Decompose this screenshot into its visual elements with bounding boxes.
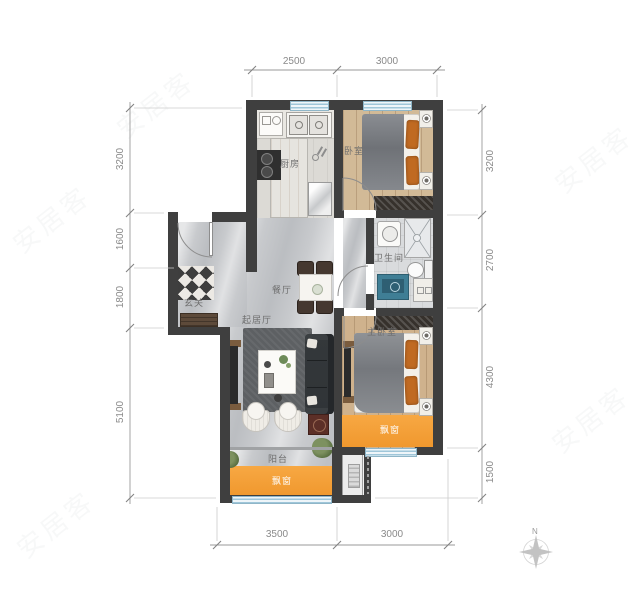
room-label-bedroom: 卧室 <box>344 147 364 156</box>
room-label-bay-window-balcony: 飘窗 <box>272 477 292 486</box>
room-label-living: 起居厅 <box>242 316 272 325</box>
pillow <box>404 340 418 369</box>
watermark: 安居客 <box>8 481 102 566</box>
room-label-master-bedroom: 主卧室 <box>367 328 397 337</box>
window <box>365 448 417 457</box>
room-label-balcony: 阳台 <box>268 455 288 464</box>
wall <box>168 212 178 335</box>
wall <box>366 294 374 310</box>
window <box>290 101 329 111</box>
entry-door-leaf <box>209 222 213 256</box>
wall <box>433 100 443 455</box>
shoe-cabinet <box>180 313 218 327</box>
room-label-kitchen: 厨房 <box>280 160 300 169</box>
kitchen-appliance <box>259 112 283 136</box>
armchair <box>242 400 270 432</box>
washing-machine <box>377 274 409 300</box>
dim-left-3: 1800 <box>116 277 126 317</box>
room-label-bathroom: 卫生间 <box>374 254 404 263</box>
foyer-checkered-floor <box>178 266 214 300</box>
ac-unit <box>342 453 363 496</box>
watermark: 安居客 <box>546 116 637 201</box>
room-label-dining: 餐厅 <box>272 286 292 295</box>
tv-console <box>344 347 351 397</box>
wall <box>376 210 443 218</box>
bed-blanket <box>354 333 404 413</box>
room-label-bay-window-master: 飘窗 <box>380 426 400 435</box>
window <box>232 496 332 504</box>
balcony-slider <box>230 447 332 450</box>
bed-blanket <box>362 114 404 190</box>
wardrobe <box>374 196 433 210</box>
pillow <box>405 120 419 150</box>
compass-icon <box>519 535 553 569</box>
wall <box>246 100 257 272</box>
nightstand <box>419 398 433 416</box>
dim-bottom-2: 3000 <box>372 530 412 540</box>
wall <box>376 308 443 316</box>
room-label-foyer: 玄关 <box>184 299 204 308</box>
tv-console-end <box>343 396 354 403</box>
watermark: 安居客 <box>108 61 202 146</box>
tv-console <box>230 346 238 404</box>
dining-chair <box>297 299 314 314</box>
dining-chair <box>316 299 333 314</box>
kitchen-sink <box>286 112 332 138</box>
wall <box>334 308 344 316</box>
wall <box>366 218 374 264</box>
wall <box>246 100 443 110</box>
nightstand <box>419 172 433 190</box>
pillow <box>405 156 419 185</box>
bath-cabinet <box>413 278 433 302</box>
compass-north-label: N <box>532 527 538 536</box>
dim-left-2: 1600 <box>116 219 126 259</box>
toilet <box>407 262 424 278</box>
sofa <box>305 334 334 414</box>
hallway-floor <box>343 218 366 308</box>
dim-left-1: 3200 <box>116 139 126 179</box>
wall <box>334 316 342 455</box>
window <box>363 101 412 111</box>
dim-right-2: 2700 <box>486 240 496 280</box>
dim-left-4: 5100 <box>116 392 126 432</box>
dim-top-2: 3000 <box>367 57 407 67</box>
toilet-tank <box>424 260 433 280</box>
sofa-pillow <box>307 396 318 406</box>
dim-top-1: 2500 <box>274 57 314 67</box>
shower <box>404 218 431 258</box>
coffee-table <box>258 350 296 394</box>
dim-right-4: 1500 <box>486 452 496 492</box>
sofa-pillow <box>306 338 317 348</box>
stove <box>257 150 281 180</box>
wall <box>334 210 344 218</box>
wall <box>415 447 443 455</box>
pillow <box>404 376 418 406</box>
wall <box>334 100 343 218</box>
tv-console-end <box>229 403 241 410</box>
side-table <box>308 414 329 435</box>
watermark: 安居客 <box>543 376 637 461</box>
wall <box>334 447 365 455</box>
fridge <box>308 182 332 216</box>
dim-bottom-1: 3500 <box>257 530 297 540</box>
armchair <box>274 400 302 432</box>
nightstand <box>419 327 433 345</box>
kitchen-utensils <box>312 146 326 160</box>
dining-table <box>299 274 332 301</box>
wall <box>212 212 250 222</box>
nightstand <box>419 110 433 128</box>
wall <box>220 327 230 503</box>
washbasin <box>377 221 401 247</box>
watermark: 安居客 <box>4 176 98 261</box>
wall <box>364 452 371 503</box>
floor-plan: 安居客 安居客 安居客 安居客 安居客 <box>0 0 637 600</box>
dim-right-1: 3200 <box>486 141 496 181</box>
dim-right-3: 4300 <box>486 357 496 397</box>
wall <box>332 447 342 503</box>
